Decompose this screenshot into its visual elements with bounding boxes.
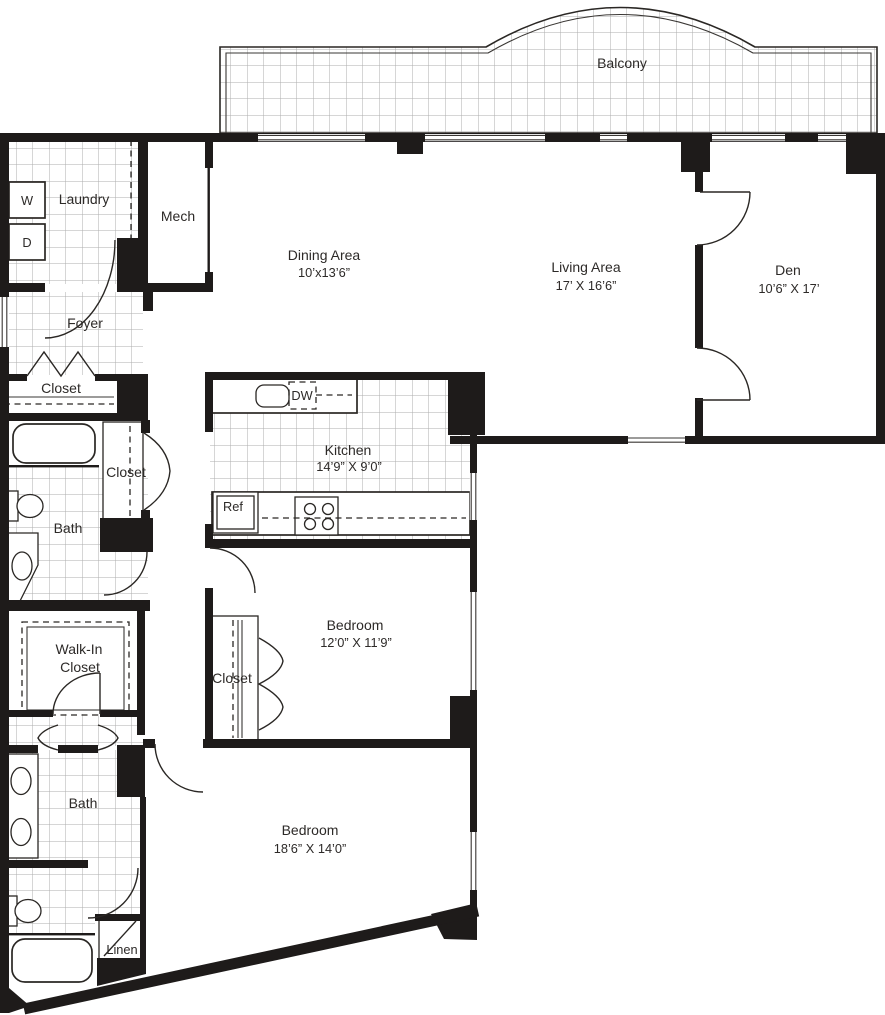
toilet-lower-bowl: [15, 900, 41, 923]
wall-living-bottom-r: [685, 436, 885, 444]
sink-lower-2: [11, 819, 31, 846]
wall-laundry-bottom-l: [0, 283, 45, 292]
wall-kitchen-top: [205, 372, 452, 380]
window-top-2: [425, 134, 545, 141]
hallway-floor: [9, 714, 143, 746]
fridge-label: Ref: [223, 499, 243, 514]
wall-right: [876, 133, 885, 443]
window-top-1: [258, 134, 365, 141]
pillar-top-1: [397, 133, 423, 154]
bath-upper-label: Bath: [54, 520, 83, 536]
stove-box: [295, 497, 338, 535]
window-top-5: [818, 134, 846, 141]
sink-lower-1: [11, 768, 31, 795]
wall-bedroom-lower-east-1: [470, 748, 477, 832]
door-den-upper-swing: [697, 192, 750, 245]
block-bedroom-mid: [450, 696, 477, 743]
bedroom-mid-closet-label: Closet: [212, 670, 252, 686]
window-kitchen-pass: [470, 473, 477, 520]
door-bedroom-mid: [210, 548, 255, 593]
wall-kitchen-bottom: [205, 539, 477, 548]
wall-tub-divider: [4, 465, 99, 467]
window-bedroom-lower: [470, 832, 477, 890]
wall-kitchen-west-top: [205, 372, 213, 432]
wall-foyer-closet-top-l: [0, 374, 27, 381]
den-label: Den: [775, 262, 801, 278]
pillar-top-2: [681, 133, 710, 172]
burner-3: [305, 519, 316, 530]
block-kitchen-corner: [448, 372, 485, 435]
pillar-laundry: [117, 238, 148, 285]
walkin-label-2: Closet: [60, 659, 100, 675]
hall-closet-label: Closet: [106, 464, 146, 480]
window-top-4: [712, 134, 785, 141]
window-top-3: [600, 134, 627, 141]
wall-bedroom-mid-east-1: [470, 548, 477, 592]
tiled-floors: [9, 141, 472, 934]
mech-door-line: [208, 168, 210, 272]
wall-foyer-closet-bottom: [0, 413, 148, 421]
balcony-label: Balcony: [597, 55, 647, 71]
pillar-bathlower: [117, 745, 145, 797]
wall-foyer-right: [143, 283, 153, 311]
door-bedroom-mid-closet-bifold: [259, 638, 283, 730]
toilet-upper-bowl: [17, 495, 43, 518]
bathtub-upper-basin: [13, 424, 95, 463]
dishwasher-label: DW: [291, 388, 313, 403]
door-walkin-swing: [53, 673, 100, 714]
pillar-hallcloset: [100, 518, 153, 552]
wall-bedrooms-divider-r: [203, 739, 477, 748]
wall-tub-lower-divider: [4, 933, 95, 935]
den-dims: 10’6” X 17’: [758, 281, 819, 296]
wall-bathlower-divider: [0, 860, 88, 868]
wall-den-west-1: [695, 172, 703, 192]
burner-4: [323, 519, 334, 530]
kitchen-label: Kitchen: [325, 442, 372, 458]
wall-left-upper: [0, 133, 9, 297]
linen-label: Linen: [106, 942, 137, 957]
wall-mech-right-top: [205, 133, 213, 168]
wall-walkin-bottom-r: [100, 710, 145, 717]
bathtub-lower: [12, 939, 92, 982]
bedroom-mid-label: Bedroom: [327, 617, 384, 633]
dining-label: Dining Area: [288, 247, 361, 263]
wall-bedrooms-divider-l: [143, 739, 155, 748]
foyer-closet-label: Closet: [41, 380, 81, 396]
wall-left-lower: [0, 347, 9, 1003]
wall-den-west-3: [695, 398, 703, 443]
kitchen-dims: 14’9” X 9’0”: [316, 459, 381, 474]
washer-label: W: [21, 193, 34, 208]
bedroom-mid-dims: 12’0” X 11’9”: [320, 635, 392, 650]
wall-living-bottom-l: [450, 436, 628, 444]
floor-plan: Balcony W D Laundry Mech Dining Area 10’…: [0, 0, 885, 1015]
bath-lower-label: Bath: [69, 795, 98, 811]
wall-bathlower-top-l: [0, 745, 38, 753]
window-living: [628, 437, 685, 443]
burner-1: [305, 504, 316, 515]
wall-bedroom-mid-west: [205, 588, 213, 743]
wall-walkin-bottom-l: [4, 710, 53, 717]
door-bedroom-lower: [155, 744, 203, 792]
mech-label: Mech: [161, 208, 195, 224]
wall-bathlower-top-m: [58, 745, 98, 753]
living-label: Living Area: [551, 259, 620, 275]
door-den-lower-swing: [697, 348, 750, 400]
balcony: [220, 8, 877, 134]
walkin-label-1: Walk-In: [56, 641, 103, 657]
bedroom-lower-dims: 18’6” X 14’0”: [274, 841, 347, 856]
wall-linen-top: [95, 914, 145, 921]
burner-2: [323, 504, 334, 515]
foyer-floor: [9, 292, 143, 375]
living-dims: 17’ X 16’6”: [556, 278, 617, 293]
sink-upper: [12, 552, 32, 580]
floor-plan-drawing: Balcony W D Laundry Mech Dining Area 10’…: [0, 0, 885, 1015]
wall-den-west-2: [695, 245, 703, 348]
wall-linen-right: [140, 797, 146, 962]
wall-hallcloset-right-top: [141, 420, 150, 433]
dryer-label: D: [22, 235, 31, 250]
entry-door-left: [1, 297, 8, 347]
window-bedroom-mid: [470, 592, 477, 690]
kitchen-sink: [256, 385, 289, 407]
foyer-label: Foyer: [67, 315, 103, 331]
laundry-label: Laundry: [59, 191, 110, 207]
wall-bathupper-bottom: [0, 600, 150, 611]
dining-dims: 10’x13’6”: [298, 265, 350, 280]
bedroom-lower-label: Bedroom: [282, 822, 339, 838]
